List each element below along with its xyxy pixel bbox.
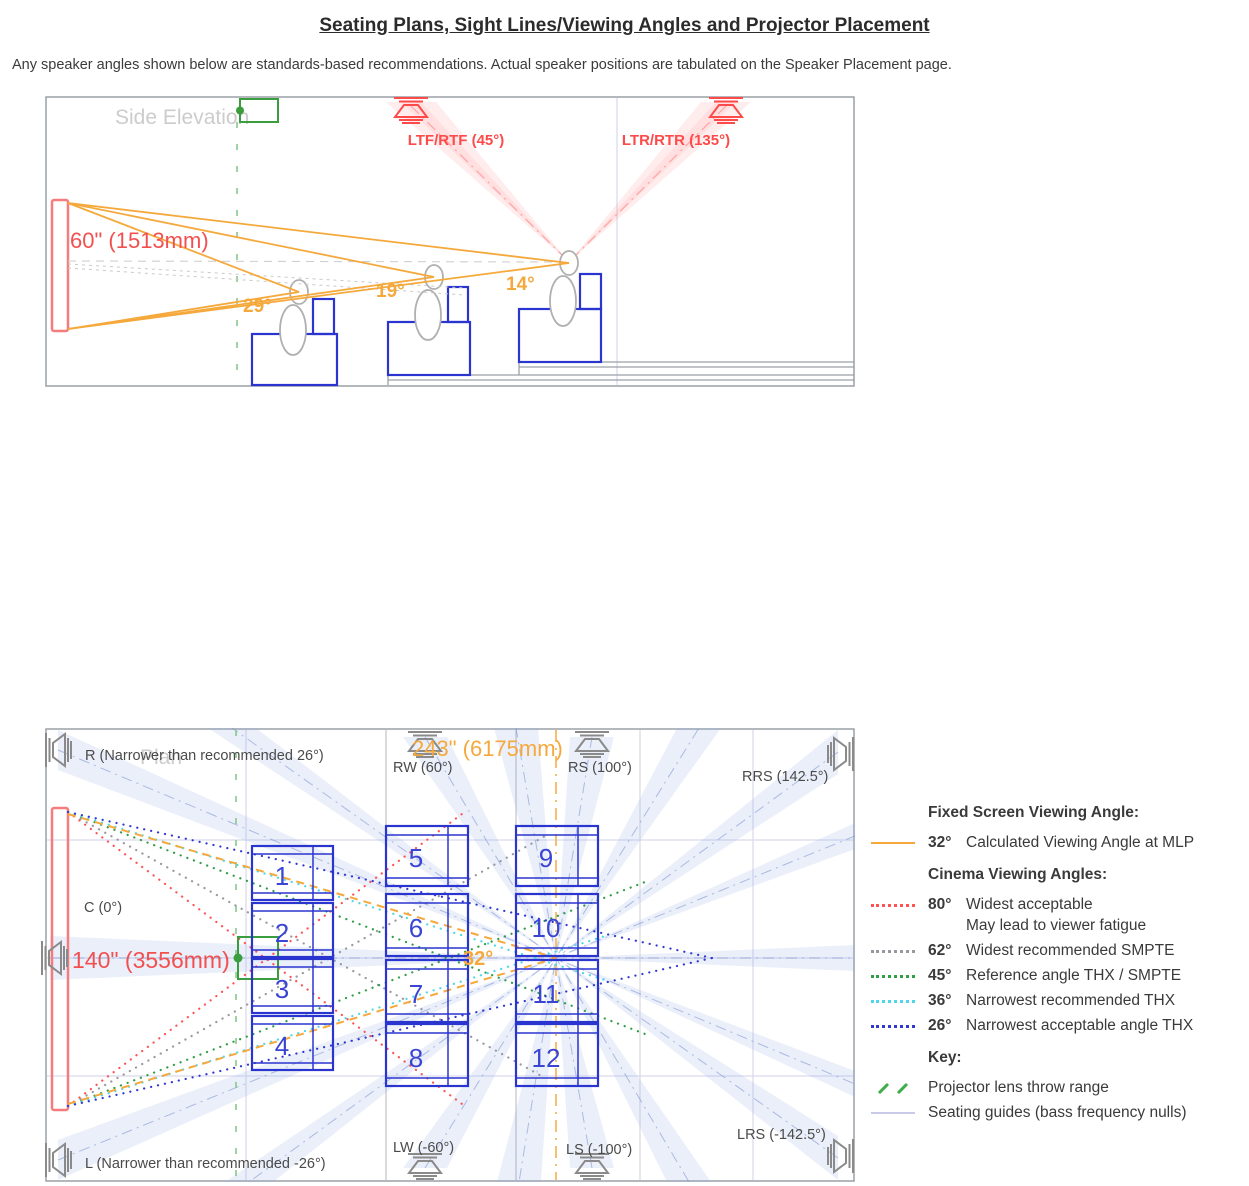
viewing-angle-row3: 14° [506,274,535,295]
svg-text:2: 2 [275,918,289,948]
legend-item-80-note: May lead to viewer fatigue [870,917,1249,935]
green-dashes-swatch-icon [870,1087,916,1090]
legend-item-seating-guides: Seating guides (bass frequency nulls) [870,1104,1249,1122]
throw-distance-label: 243" (6175mm) [412,736,563,761]
legend-item-62: 62° Widest recommended SMPTE [870,942,1249,960]
speaker-label-ltf-rtf: LTF/RTF (45°) [408,132,505,149]
svg-text:9: 9 [539,843,553,873]
legend-item-32: 32° Calculated Viewing Angle at MLP [870,834,1249,852]
lavender-line-swatch-icon [870,1112,916,1114]
legend-heading-fixed: Fixed Screen Viewing Angle: [870,804,1249,822]
sight-lines [68,203,569,329]
svg-text:6: 6 [409,913,423,943]
svg-text:7: 7 [409,979,423,1009]
legend-item-45: 45° Reference angle THX / SMPTE [870,967,1249,985]
svg-text:8: 8 [409,1043,423,1073]
eye-level-lines [68,261,564,295]
speaker-label-ltr-rtr: LTR/RTR (135°) [622,132,730,149]
speaker-label-rw: RW (60°) [393,760,453,776]
side-elevation-diagram: Side Elevation LTF/RTF (45°) LTR/RTR (13… [45,96,855,387]
plan-diagram: Plan [45,728,855,1182]
svg-text:11: 11 [533,979,560,1009]
viewing-angle-row2: 19° [376,281,405,302]
projector-lens-icon [236,107,244,115]
projector-lens-icon [234,954,243,963]
riser-steps [388,362,854,385]
cyan-dotted-swatch-icon [870,1000,916,1003]
speaker-label-r: R (Narrower than recommended 26°) [85,748,324,764]
legend-item-36: 36° Narrowest recommended THX [870,992,1249,1010]
speaker-label-ls: LS (-100°) [566,1142,632,1158]
orange-line-swatch-icon [870,842,916,844]
legend-heading-cinema: Cinema Viewing Angles: [870,866,1249,884]
side-elevation-watermark: Side Elevation [115,106,249,129]
speaker-rrs-icon [828,737,853,771]
legend-item-throw-range: Projector lens throw range [870,1079,1249,1097]
svg-text:3: 3 [275,974,289,1004]
legend-heading-key: Key: [870,1049,1249,1067]
svg-text:10: 10 [532,913,561,943]
gray-dotted-swatch-icon [870,950,916,953]
screen-size-label-plan: 140" (3556mm) [72,947,230,973]
ceiling-speaker-beams [386,102,751,262]
viewing-angle-row1: 29° [243,296,272,317]
svg-text:12: 12 [532,1043,561,1073]
seat-3: 3 [252,959,333,1013]
speaker-label-lrs: LRS (-142.5°) [737,1127,826,1143]
speaker-lrs-icon [828,1139,853,1173]
svg-text:4: 4 [275,1031,289,1061]
mlp-viewing-angle-label: 32° [463,948,493,970]
page-title: Seating Plans, Sight Lines/Viewing Angle… [0,15,1249,37]
speaker-label-lw: LW (-60°) [393,1140,454,1156]
screen-side-view [52,200,68,331]
green-dotted-swatch-icon [870,975,916,978]
speaker-label-rs: RS (100°) [568,760,632,776]
screen-size-label-side: 60" (1513mm) [70,228,209,253]
page-subtitle: Any speaker angles shown below are stand… [12,57,952,73]
speaker-label-l: L (Narrower than recommended -26°) [85,1156,326,1172]
legend: Fixed Screen Viewing Angle: 32° Calculat… [870,790,1249,1129]
legend-item-26: 26° Narrowest acceptable angle THX [870,1017,1249,1035]
speaker-label-c: C (0°) [84,900,122,916]
red-dotted-swatch-icon [870,904,916,907]
seat-9: 9 [516,826,598,886]
svg-text:5: 5 [409,843,423,873]
speaker-label-rrs: RRS (142.5°) [742,769,828,785]
legend-item-80: 80° Widest acceptable [870,896,1249,914]
seat-5: 5 [386,826,468,886]
viewers [280,251,578,355]
page: Seating Plans, Sight Lines/Viewing Angle… [0,0,1249,1186]
svg-text:1: 1 [275,861,289,891]
blue-dotted-swatch-icon [870,1025,916,1028]
